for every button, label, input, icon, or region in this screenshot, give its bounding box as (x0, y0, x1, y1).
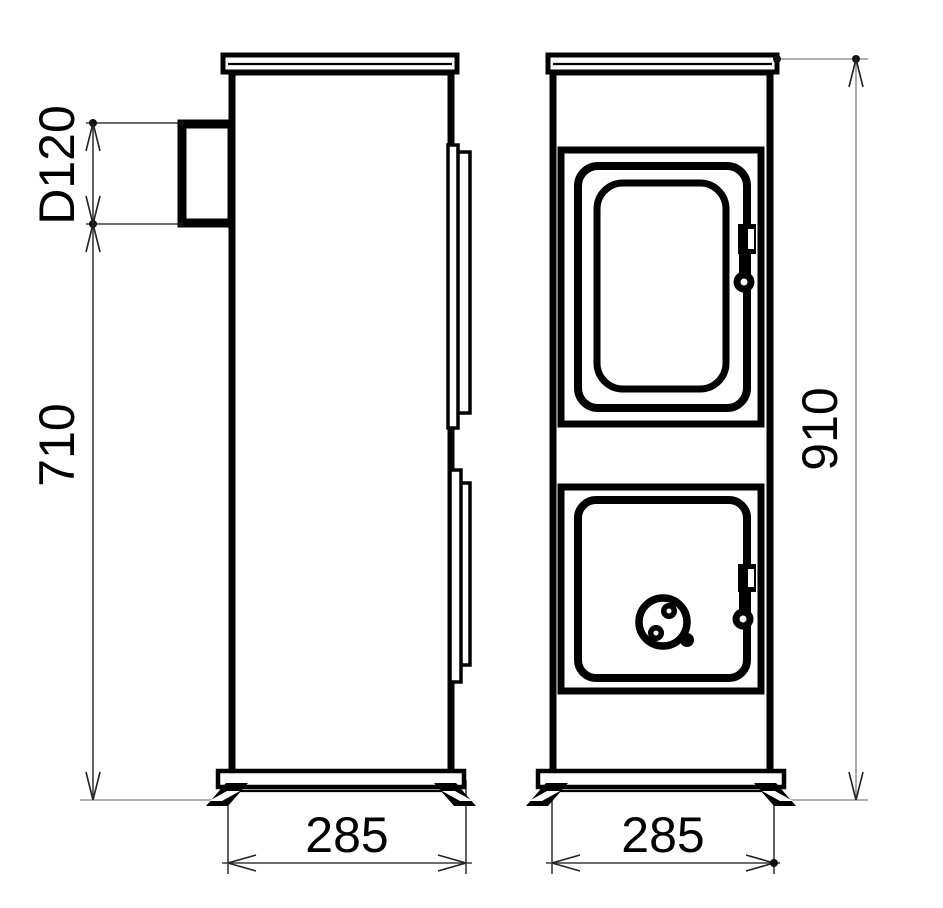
fire-door (561, 150, 761, 424)
dim-dot (773, 55, 781, 63)
overall-height-label: 910 (792, 387, 848, 470)
ash-door (561, 487, 761, 691)
dim-dot (178, 221, 184, 227)
front-width-label: 285 (621, 807, 704, 863)
side-base-plate (218, 771, 464, 787)
air-spinner-hole-lower-pin (654, 631, 659, 636)
dimension-front-width: 285 (552, 807, 778, 871)
fire-door-hinge-slot (748, 229, 754, 249)
side-base (206, 771, 476, 806)
dimension-overall-height: 910 (773, 55, 863, 800)
air-spinner-hole-upper-pin (667, 609, 672, 614)
side-depth-label: 285 (305, 807, 388, 863)
ash-door-hinge-slot (748, 569, 754, 587)
technical-drawing-page: D120 710 910 285 285 (0, 0, 943, 908)
ash-door-panel (578, 500, 747, 678)
flue-collar (182, 124, 232, 223)
fire-door-knob-hole (741, 279, 748, 286)
lower-door-profile-inner (450, 470, 461, 682)
front-base (526, 771, 796, 806)
air-spinner-ring (639, 598, 687, 646)
side-view (182, 55, 476, 806)
side-door-profiles (448, 145, 470, 682)
dim-dot (770, 859, 778, 867)
front-base-plate (538, 771, 784, 787)
flue-diameter-label: D120 (29, 105, 85, 225)
front-view (526, 55, 796, 806)
dimension-710: 710 (29, 224, 100, 800)
fire-door-glass (597, 183, 726, 389)
dim-dot (178, 120, 184, 126)
stove-drawing-svg: D120 710 910 285 285 (0, 0, 943, 908)
side-body (232, 72, 451, 774)
height-710-label: 710 (29, 403, 85, 486)
air-spinner-handle (680, 633, 694, 647)
dimension-side-depth: 285 (228, 807, 466, 871)
ash-door-knob-hole (740, 616, 747, 623)
upper-door-profile-inner (448, 145, 458, 428)
